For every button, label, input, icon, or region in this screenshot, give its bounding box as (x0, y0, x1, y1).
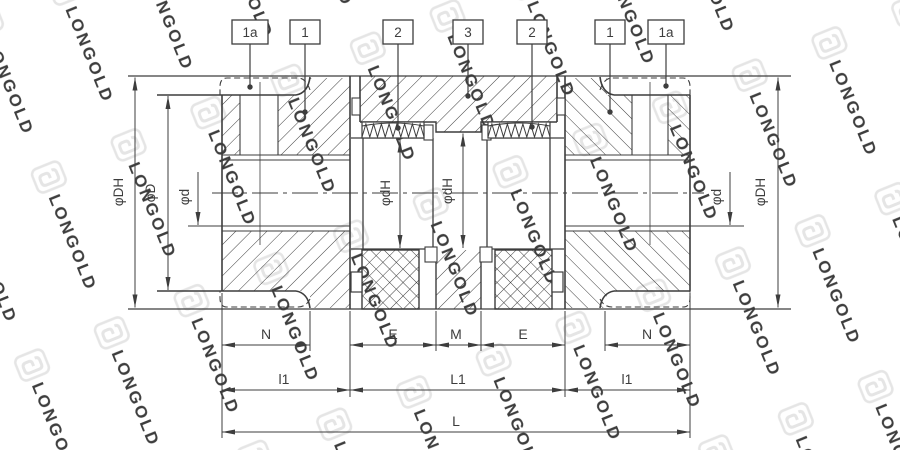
left-hub-hatch-area (278, 95, 350, 155)
sleeve-notch (425, 247, 437, 262)
right-hub-hatch-area (565, 231, 690, 291)
dim-label-L: L (452, 413, 460, 429)
callout-dot (247, 84, 252, 89)
dim-label-E-right: E (518, 326, 527, 342)
elastomer-spider-right (495, 250, 552, 309)
right-hub-hatch-area (668, 95, 690, 155)
dim-label-M: M (450, 326, 462, 342)
sleeve-hatch-area (436, 250, 481, 309)
dim-label-phi-dH-center: φdH (440, 178, 455, 204)
callout-label-2-left: 2 (394, 25, 402, 40)
sleeve-notch (557, 98, 565, 115)
callout-dot (607, 109, 612, 114)
left-hub-hatch-area (222, 231, 350, 291)
sleeve-hatch-area (360, 76, 557, 122)
sleeve-notch (352, 98, 360, 115)
callout-label-1-left: 1 (301, 25, 309, 40)
spider-tab (552, 272, 563, 292)
dim-label-N-right: N (642, 326, 652, 342)
dim-label-phi-dH-left: φdH (378, 180, 393, 206)
callout-label-1a-left: 1a (242, 25, 258, 40)
callout-label-1a-right: 1a (658, 25, 674, 40)
spider-tab (351, 272, 362, 292)
dim-label-N-left: N (261, 326, 271, 342)
dim-label-l1-right: l1 (622, 371, 633, 387)
callout-dot (529, 124, 534, 129)
sleeve-hatch-area (436, 122, 481, 132)
dim-label-phi-d-right: φd (709, 189, 724, 205)
serrated-ring-right (488, 122, 550, 138)
callout-label-1-right: 1 (606, 25, 614, 40)
left-hub-hatch-area (310, 291, 350, 308)
callout-boxes (232, 20, 684, 44)
sleeve-notch (480, 247, 492, 262)
dim-label-phi-d-left: φd (177, 189, 192, 205)
serrated-ring-left (362, 122, 424, 138)
dim-label-phi-DH-left: φDH (111, 178, 126, 206)
left-hub-hatch-area (310, 78, 350, 95)
callout-label-2-right: 2 (528, 25, 536, 40)
elastomer-spider-left (362, 250, 419, 309)
left-hub-hatch-area (222, 95, 240, 155)
callout-dot (395, 125, 400, 130)
callout-dot (465, 93, 470, 98)
sleeve-notch (424, 125, 433, 140)
dim-label-E-left: E (388, 326, 397, 342)
callout-dot (663, 83, 668, 88)
dim-label-l1-left: l1 (279, 371, 290, 387)
coupling-technical-drawing: LONGOLD (0, 0, 900, 450)
right-hub-hatch-area (565, 95, 632, 155)
dim-label-L1: L1 (450, 371, 466, 387)
coupling-drawing-page: LONGOLD (0, 0, 900, 450)
dim-label-phi-D-left: φD (143, 184, 158, 203)
callout-label-3: 3 (464, 25, 472, 40)
callout-dot (302, 109, 307, 114)
dim-label-phi-DH-right: φDH (753, 178, 768, 206)
